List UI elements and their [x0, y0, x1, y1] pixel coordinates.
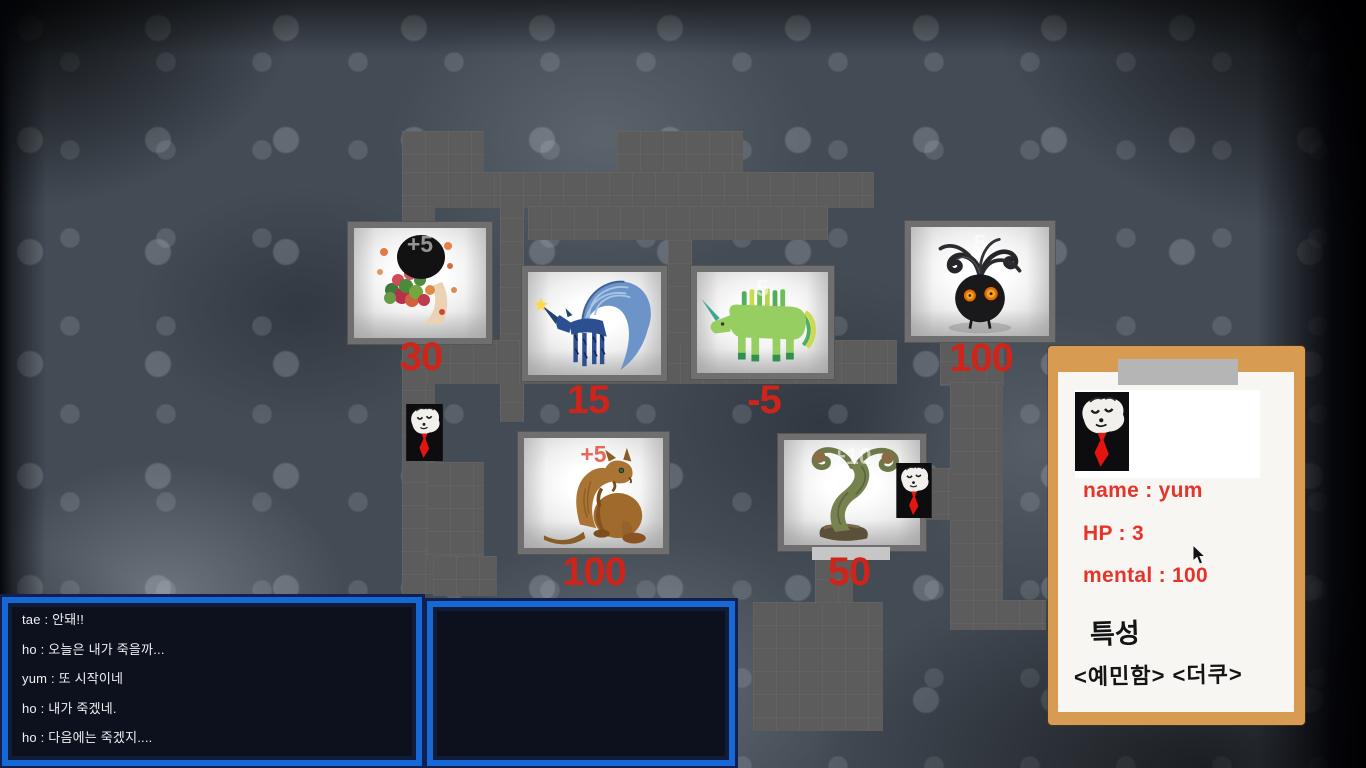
corridor-segment [402, 131, 484, 173]
creature-room-rat-beast[interactable]: +5 [518, 432, 669, 554]
chat-message: ho : 다음에는 죽겠지.... [8, 722, 416, 752]
dialog-panel-empty [427, 601, 735, 766]
chat-message: tae : 안돼!! [8, 604, 416, 634]
corridor-segment [950, 600, 1046, 630]
stat-mental: mental : 100 [1083, 564, 1208, 588]
corridor-segment [402, 172, 874, 208]
room-bonus-label: +5 [524, 441, 663, 468]
room-score-blue-unicorn: 15 [518, 380, 658, 420]
corridor-segment [668, 240, 692, 342]
room-score-rat-beast: 100 [524, 552, 664, 592]
player-token[interactable] [896, 463, 932, 518]
status-clipboard: name : yum HP : 3 mental : 100 특성 <예민함> … [1048, 346, 1305, 725]
creature-room-shadow-sprout[interactable]: 5 [905, 221, 1055, 342]
mouse-cursor [1192, 544, 1207, 566]
chat-message: ho : 내가 죽겠네. [8, 693, 416, 723]
player-portrait [1075, 392, 1129, 471]
chat-message: ho : 오늘은 내가 죽을까... [8, 634, 416, 664]
clipboard-clip [1118, 359, 1238, 385]
stat-hp: HP : 3 [1083, 522, 1144, 546]
blue-unicorn-image [528, 272, 661, 375]
room-score-green-unicorn: -5 [694, 380, 834, 420]
creature-room-flower-person[interactable]: +5 [348, 222, 492, 344]
creature-room-green-unicorn[interactable]: 5 [691, 266, 834, 379]
traits-values: <예민함> <더쿠> [1074, 657, 1243, 692]
creature-room-blue-unicorn[interactable] [522, 266, 667, 381]
room-score-flower-person: 30 [351, 337, 491, 377]
stat-name: name : yum [1083, 479, 1203, 503]
room-bonus-label: +5 [354, 231, 486, 258]
corridor-segment [950, 382, 1003, 604]
room-score-shadow-sprout: 100 [911, 338, 1051, 378]
chat-log-panel: tae : 안돼!! ho : 오늘은 내가 죽을까... yum : 또 시작… [2, 597, 422, 766]
corridor-segment [528, 206, 828, 240]
traits-heading: 특성 [1089, 611, 1140, 652]
chat-message: yum : 또 시작이네 [8, 663, 416, 693]
corridor-segment [433, 556, 497, 596]
game-screen: +5 [0, 0, 1366, 768]
room-bonus-label: 5 [911, 230, 1049, 257]
player-token[interactable] [406, 404, 443, 461]
corridor-segment [427, 462, 484, 559]
corridor-segment [617, 131, 743, 173]
room-score-spiral-tree: 50 [779, 552, 919, 592]
room-bonus-label: 5 [697, 275, 828, 302]
corridor-segment [753, 602, 883, 731]
